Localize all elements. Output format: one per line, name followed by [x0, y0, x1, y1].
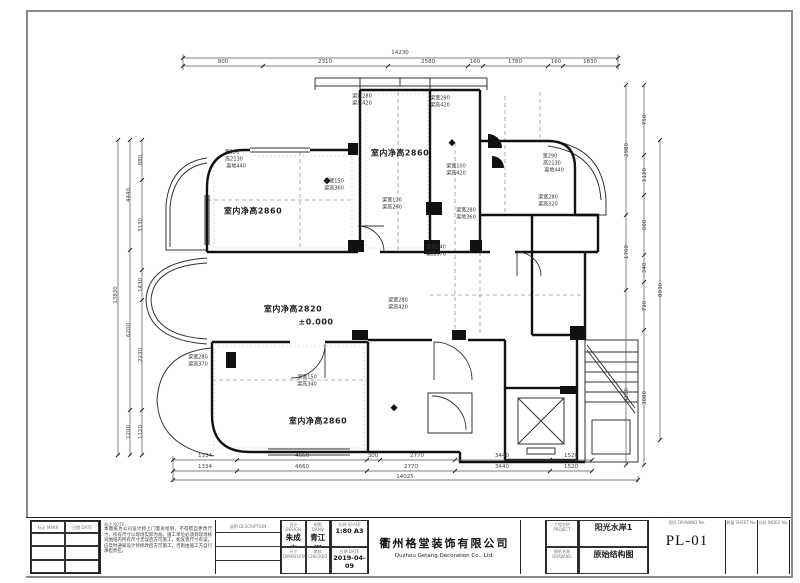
room-label: 室内净高2860	[289, 416, 347, 427]
revision-empty-cell	[31, 560, 65, 573]
drawing-number-cell: 图号 DRAWING No. PL-01	[648, 520, 725, 574]
room-label: ±0.000	[298, 318, 333, 327]
description-empty-row	[216, 533, 280, 547]
dimension-label: 1520	[564, 453, 578, 459]
beam-annotation: 梁宽280	[188, 354, 208, 361]
dimension-label: 1334	[198, 453, 212, 459]
note-box: 备注 NOTE: 本图纸为公司设计师上门量房绘制，不得擅自更改尺寸，所有尺寸以现…	[100, 520, 215, 574]
beam-annotation: 梁高420	[446, 170, 466, 177]
scale-cell: 比例 SCALE 1:80 A3	[331, 520, 368, 547]
beam-annotation: 梁高370	[188, 361, 208, 368]
revision-table: 标记 MARK 日期 DATE	[30, 520, 100, 574]
room-label: 室内净高2860	[371, 148, 429, 159]
beam-annotation: 离地440	[226, 163, 246, 170]
drawing-number: PL-01	[649, 533, 725, 550]
dimension-label: 2230	[138, 348, 144, 362]
beam-annotation: 梁宽280	[538, 194, 558, 201]
project-label-column: 工程名称 PROJECT 图纸名称 DRAWING	[545, 520, 578, 574]
project-value-column: 阳光水岸1 原始结构图	[578, 520, 648, 574]
drawing-title-label: 图纸名称 DRAWING	[546, 547, 578, 574]
dimension-label: 1120	[642, 168, 648, 182]
dimension-label: 14230	[391, 50, 409, 56]
dimension-label: 160	[551, 59, 562, 65]
dimension-label: 3080	[642, 391, 648, 405]
drawing-title: 原始结构图	[579, 547, 648, 574]
dimension-label: 4440	[126, 188, 132, 202]
dimension-label: 1120	[138, 425, 144, 439]
revision-empty-cell	[65, 560, 99, 573]
signoff-empty-cell	[520, 520, 545, 574]
beam-annotation: 梁高370	[426, 251, 446, 258]
title-block: 标记 MARK 日期 DATE 备注 NOTE: 本图纸为公司设计师上门量房绘制…	[26, 517, 791, 576]
company-name-en: Quzhou Getang Decoration Co., Ltd.	[395, 553, 494, 559]
dimension-label: 160	[470, 59, 481, 65]
revision-empty-cell	[65, 533, 99, 546]
beam-annotation: 梁宽120	[382, 197, 402, 204]
dimension-label: 4180	[624, 388, 630, 402]
beam-annotation: 梁高260	[382, 204, 402, 211]
beam-annotation: 梁高420	[388, 304, 408, 311]
dimension-label: 720	[642, 301, 648, 312]
description-empty-row	[216, 561, 280, 574]
beam-annotation: 梁高420	[430, 102, 450, 109]
drawing-sheet: 1423080023102580160178016018301334466030…	[0, 0, 800, 583]
dimension-label: 1200	[126, 425, 132, 439]
dimension-label: 4660	[295, 464, 309, 470]
project-name: 阳光水岸1	[579, 520, 648, 547]
scale-date-column: 比例 SCALE 1:80 A3 日期 DATE 2019-04-09	[330, 520, 368, 574]
beam-annotation: 梁宽280	[388, 297, 408, 304]
beam-annotation: 离地440	[544, 167, 564, 174]
beam-annotation: 梁宽150	[324, 178, 344, 185]
dimension-label: 8930	[658, 283, 664, 297]
dimension-label: 4660	[295, 453, 309, 459]
beam-annotation: 高2130	[543, 160, 561, 167]
beam-annotation: 梁宽100	[446, 163, 466, 170]
dimension-lines	[118, 54, 660, 482]
draftsman-cell: 制图 DRAW 青江洲 138 123 5600	[306, 520, 331, 547]
dimension-label: 2310	[318, 59, 332, 65]
dimension-label: 1830	[583, 59, 597, 65]
beam-annotation: 高2130	[225, 156, 243, 163]
index-number-cell: 存档 INDEX No.	[757, 520, 790, 574]
date-cell: 日期 DATE 2019-04-09	[331, 547, 368, 574]
dimension-label: 1700	[624, 245, 630, 259]
description-empty-row	[216, 547, 280, 561]
columns	[226, 134, 584, 411]
dimension-label: 2770	[410, 453, 424, 459]
dimension-label: 2980	[624, 143, 630, 157]
sheet-number-cell: 数量 SHEET No.	[725, 520, 757, 574]
beam-annotation: 梁宽280	[430, 95, 450, 102]
beam-annotation: 梁高340	[297, 381, 317, 388]
checked-cell: 审核 CHECKED	[306, 547, 331, 574]
beam-annotation: 梁高320	[538, 201, 558, 208]
draftsman-name: 青江洲	[308, 532, 329, 547]
dimension-label: 880	[138, 155, 144, 166]
description-column: 说明 DESCRIPTION	[215, 520, 280, 574]
drawing-number-label: 图号 DRAWING No.	[649, 520, 725, 525]
dimension-label: 300	[368, 453, 379, 459]
designer-cell: 设计 DESIGN 朱成杰	[281, 520, 306, 547]
dimension-check-cell: 尺寸 DIMENSION	[281, 547, 306, 574]
dimension-label: 340	[642, 263, 648, 274]
beam-annotation: 梁高360	[324, 185, 344, 192]
dimension-label: 尺寸 DIMENSION	[283, 549, 304, 559]
designer-name: 朱成杰	[283, 532, 304, 547]
scale-value: 1:80 A3	[333, 527, 366, 535]
project-label: 工程名称 PROJECT	[546, 520, 578, 547]
walls	[207, 90, 598, 462]
dimension-label: 14025	[396, 474, 414, 480]
dimension-ticks	[116, 56, 662, 482]
index-number-label: 存档 INDEX No.	[758, 520, 789, 525]
beam-annotation: 宽290	[225, 149, 240, 156]
dimension-label: 6200	[126, 323, 132, 337]
dimension-label: 1334	[198, 464, 212, 470]
door-arcs	[291, 226, 541, 430]
room-label: 室内净高2860	[224, 206, 282, 217]
beam-annotation: 离地360	[456, 214, 476, 221]
dimension-label: 3440	[495, 453, 509, 459]
floor-plan-drawing	[0, 0, 800, 583]
revision-date-header: 日期 DATE	[65, 521, 99, 533]
dimension-label: 2770	[404, 464, 418, 470]
company-cell: 衢州格堂装饰有限公司 Quzhou Getang Decoration Co.,…	[368, 520, 520, 574]
checked-label: 审核 CHECKED	[308, 549, 329, 559]
dimension-label: 1430	[138, 278, 144, 292]
beam-annotation: 梁宽150	[297, 374, 317, 381]
description-header: 说明 DESCRIPTION	[216, 520, 280, 533]
dimension-label: 2580	[421, 59, 435, 65]
dimension-label: 600	[642, 220, 648, 231]
revision-empty-cell	[65, 546, 99, 559]
beam-annotation: 梁宽280	[456, 207, 476, 214]
revision-mark-header: 标记 MARK	[31, 521, 65, 533]
revision-empty-cell	[31, 546, 65, 559]
dimension-label: 1780	[508, 59, 522, 65]
draftsman-label: 制图 DRAW	[308, 522, 329, 532]
date-value: 2019-04-09	[333, 554, 366, 570]
dimension-label: 1520	[564, 464, 578, 470]
designer-label: 设计 DESIGN	[283, 522, 304, 532]
dimension-label: 3130	[138, 218, 144, 232]
windows-balconies	[146, 78, 606, 456]
staff-grid: 设计 DESIGN 朱成杰 制图 DRAW 青江洲 138 123 5600 尺…	[280, 520, 330, 574]
beam-dashed-lines	[207, 92, 585, 380]
stairs-elevator	[428, 340, 638, 462]
beam-annotation: 梁宽240	[426, 244, 446, 251]
beam-annotation: 梁宽280	[352, 93, 372, 100]
note-text: 本图纸为公司设计师上门量房绘制，不得擅自更改尺寸，所有尺寸以现场实际为准。施工单…	[104, 527, 212, 555]
dimension-label: 13830	[113, 286, 119, 304]
room-label: 室内净高2820	[264, 304, 322, 315]
revision-empty-cell	[31, 533, 65, 546]
sheet-number-label: 数量 SHEET No.	[726, 520, 757, 525]
beam-annotation: 梁高420	[352, 100, 372, 107]
dimension-label: 800	[218, 59, 229, 65]
beam-annotation: 宽290	[543, 153, 558, 160]
dimension-label: 750	[642, 115, 648, 126]
company-name-cn: 衢州格堂装饰有限公司	[380, 535, 510, 551]
dimension-label: 3440	[495, 464, 509, 470]
